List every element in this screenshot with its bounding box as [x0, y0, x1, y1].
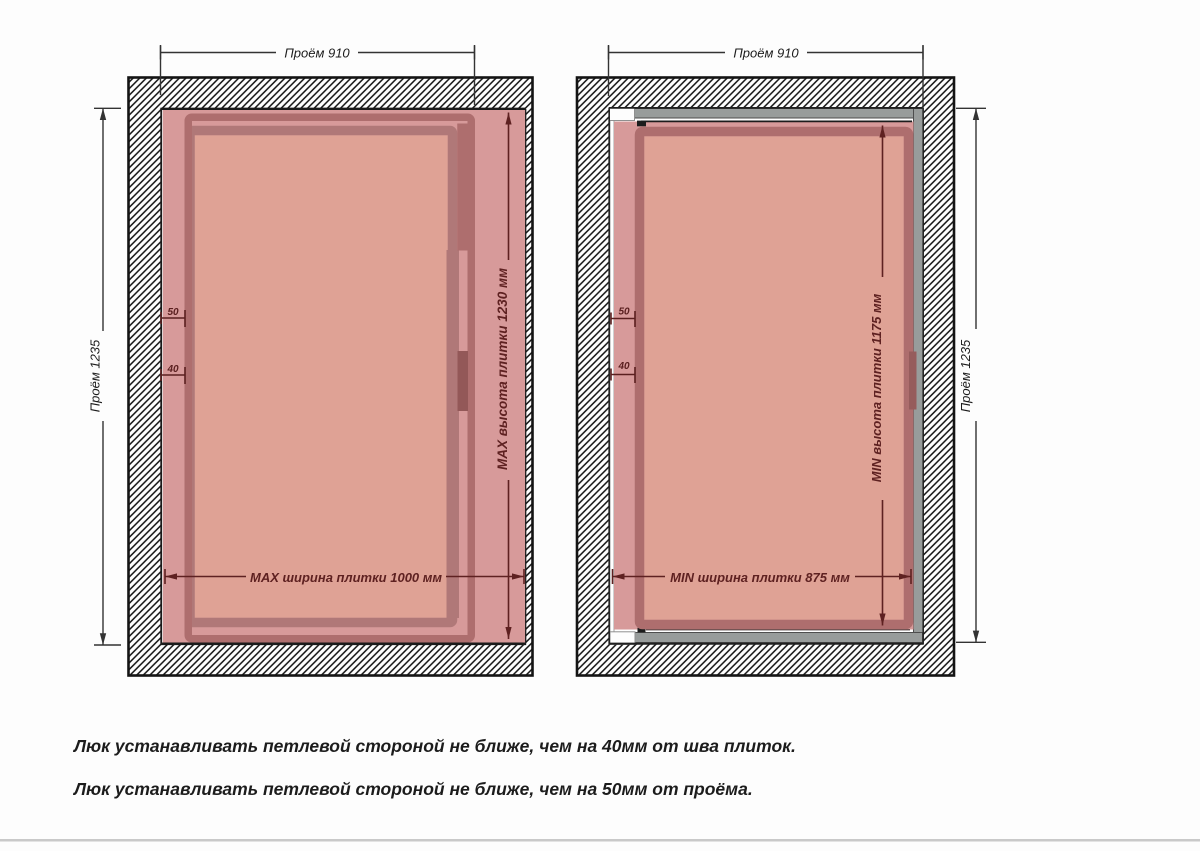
- svg-text:Проём 1235: Проём 1235: [88, 339, 103, 412]
- svg-text:Проём 910: Проём 910: [284, 46, 350, 61]
- svg-text:Проём 910: Проём 910: [733, 46, 799, 61]
- svg-text:MAX ширина плитки 1000 мм: MAX ширина плитки 1000 мм: [250, 570, 442, 585]
- svg-text:MAX высота плитки 1230 мм: MAX высота плитки 1230 мм: [495, 268, 510, 470]
- svg-text:50: 50: [618, 307, 630, 318]
- svg-text:40: 40: [617, 361, 630, 372]
- svg-text:40: 40: [166, 364, 179, 375]
- svg-text:Люк устанавливать петлевой сто: Люк устанавливать петлевой стороной не б…: [72, 779, 753, 799]
- svg-text:MIN ширина плитки 875 мм: MIN ширина плитки 875 мм: [670, 570, 850, 585]
- svg-text:Проём 1235: Проём 1235: [958, 339, 973, 412]
- svg-text:Люк устанавливать петлевой сто: Люк устанавливать петлевой стороной не б…: [72, 736, 796, 756]
- svg-text:50: 50: [167, 307, 179, 318]
- svg-text:MIN высота плитки 1175 мм: MIN высота плитки 1175 мм: [869, 293, 884, 482]
